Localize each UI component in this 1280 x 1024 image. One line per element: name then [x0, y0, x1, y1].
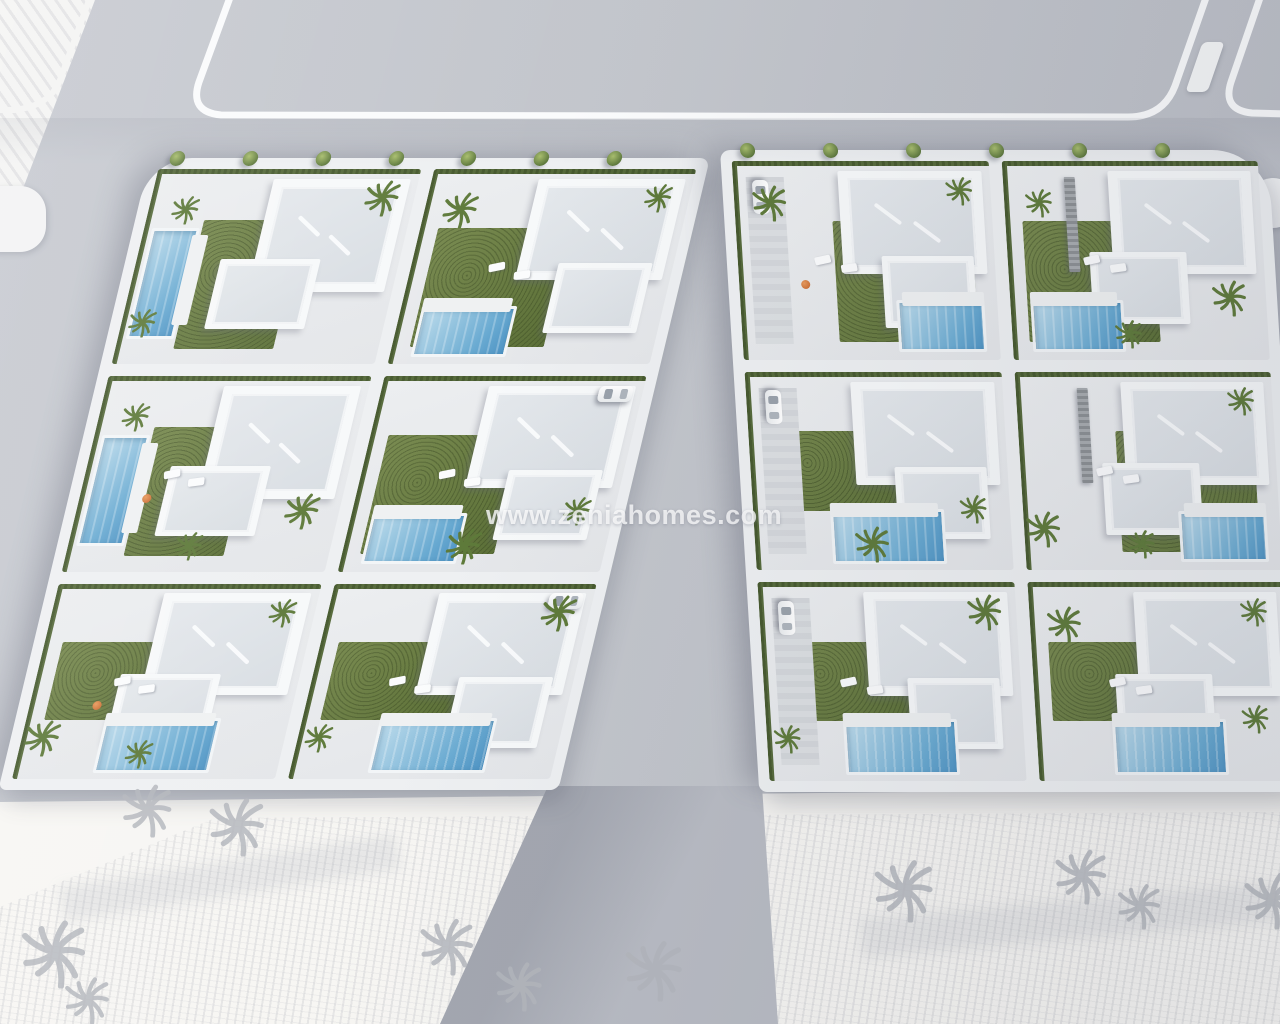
skylight [467, 624, 491, 647]
hedge [732, 161, 989, 166]
villa-house-wing [204, 259, 321, 329]
villa [287, 584, 596, 779]
sunbed [513, 269, 530, 279]
pool-terrace [1184, 503, 1267, 517]
kerb-east-branch [1229, 0, 1280, 114]
hedge [1014, 372, 1031, 571]
villa-pool [830, 509, 947, 565]
sunbed [1135, 685, 1152, 695]
villa [1001, 161, 1270, 360]
villa-roof [861, 389, 990, 478]
car [752, 180, 770, 214]
villa-pool [360, 513, 467, 564]
palm-tree-icon [1210, 279, 1251, 322]
villa-pool [1112, 719, 1229, 775]
tree-icon [906, 143, 922, 158]
skylight [600, 227, 624, 250]
villa-pool [410, 306, 517, 357]
pool-terrace [1112, 713, 1221, 727]
skylight [297, 215, 320, 237]
skylight [1195, 431, 1224, 454]
skylight [900, 624, 929, 647]
tree-icon [740, 143, 756, 158]
villa-roof [527, 186, 674, 273]
hedge [107, 376, 371, 381]
stone-feature-wall [1077, 388, 1094, 483]
kerb-main [197, 0, 1208, 117]
tree-icon [823, 143, 839, 158]
pool-terrace [901, 292, 984, 306]
skylight [566, 209, 590, 232]
skylight [1182, 220, 1211, 243]
car [778, 601, 796, 635]
skylight [328, 234, 351, 256]
villa-roof [477, 393, 624, 480]
car [546, 593, 584, 609]
hedge [333, 584, 597, 589]
skylight [501, 641, 525, 664]
skylight [874, 202, 903, 225]
tree-icon [1072, 143, 1088, 158]
palm-tree-icon [1240, 704, 1272, 739]
tree-icon [387, 151, 406, 166]
villa [757, 582, 1026, 781]
villa [1014, 372, 1280, 571]
pool-terrace [421, 298, 514, 312]
tree-icon [314, 151, 333, 166]
skylight [1156, 413, 1185, 436]
tree-icon [241, 151, 260, 166]
villa-pool [896, 300, 987, 352]
hedge [157, 169, 421, 174]
traffic-island [1185, 42, 1224, 92]
palm-tree-icon [1024, 187, 1056, 222]
hedge [757, 582, 1014, 587]
skylight [278, 442, 301, 464]
villa-roof [549, 268, 645, 328]
hedge [433, 169, 697, 174]
villa [387, 169, 696, 364]
villa-pool [1030, 300, 1126, 352]
villa [62, 376, 371, 571]
tree-icon [1155, 143, 1171, 158]
skylight [912, 220, 941, 243]
hedge [1027, 582, 1044, 781]
palm-tree-icon [166, 194, 204, 229]
villa-pool [92, 718, 221, 773]
hedge [1001, 161, 1258, 166]
skylight [1144, 202, 1173, 225]
skylight [248, 422, 271, 444]
hedge [745, 372, 1002, 377]
accent-pouf [801, 280, 811, 289]
villa [732, 161, 1001, 360]
villa [111, 169, 420, 364]
villa [745, 372, 1014, 571]
tree-icon [168, 151, 187, 166]
tree-icon [989, 143, 1005, 158]
skylight [1207, 642, 1236, 665]
villa [1027, 582, 1280, 781]
villa-pool [1178, 511, 1269, 563]
palm-tree-icon [116, 402, 154, 437]
villa [12, 584, 321, 779]
skylight [550, 434, 574, 457]
villa-roof [874, 599, 1003, 688]
villa-block-left [0, 158, 710, 790]
render-scene: www.zeniahomes.com [0, 0, 1280, 1024]
hedge [1027, 582, 1280, 587]
skylight [887, 413, 916, 436]
villa [337, 376, 646, 571]
sunbed [866, 685, 883, 695]
villa-roof [162, 471, 262, 531]
skylight [225, 641, 249, 664]
villa-pool [843, 719, 960, 775]
hedge [383, 376, 647, 381]
pool-terrace [371, 505, 464, 519]
hedge [1014, 372, 1271, 377]
villa-roof [848, 178, 977, 267]
tree-icon [605, 151, 624, 166]
skylight [1169, 624, 1198, 647]
villa-pool [368, 718, 497, 773]
tree-icon [532, 151, 551, 166]
sunbed [814, 255, 832, 266]
pool-terrace [1030, 292, 1118, 306]
watermark: www.zeniahomes.com [486, 500, 782, 531]
villa-roof [427, 601, 574, 688]
skylight [925, 431, 954, 454]
villa-house-wing [541, 263, 652, 333]
skylight [517, 417, 541, 440]
skylight [938, 642, 967, 665]
car [765, 390, 783, 424]
pool-terrace [830, 503, 939, 517]
hedge [1001, 161, 1018, 360]
palm-tree-icon [1024, 509, 1065, 552]
kerb-bulb [0, 186, 46, 252]
pool-terrace [842, 713, 951, 727]
pool-terrace [103, 713, 217, 727]
villa-roof [212, 264, 312, 324]
pool-terrace [379, 713, 493, 727]
villa-block-right [720, 150, 1280, 792]
tree-icon [460, 151, 479, 166]
hedge [58, 584, 322, 589]
car [596, 386, 634, 402]
skylight [191, 624, 215, 647]
